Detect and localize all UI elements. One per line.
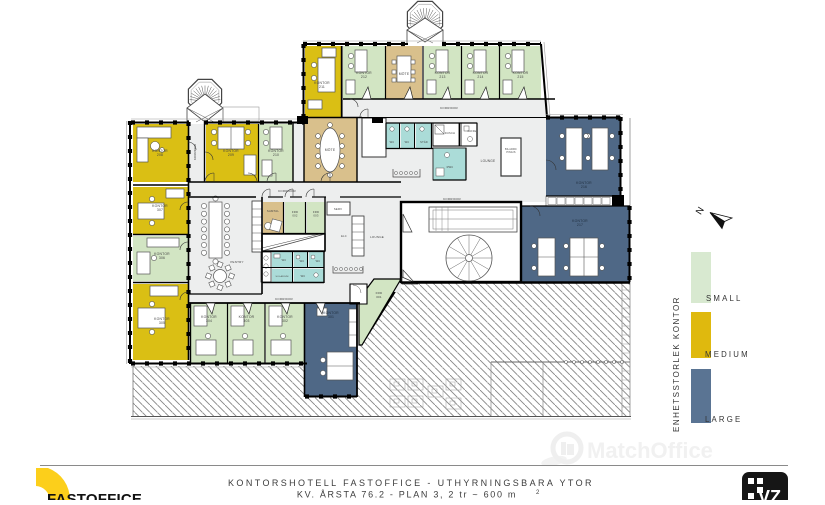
- svg-text:STÄD: STÄD: [420, 140, 428, 144]
- svg-text:MÖTE: MÖTE: [325, 148, 336, 152]
- svg-text:210: 210: [273, 153, 279, 157]
- svg-text:SOLARIUM: SOLARIUM: [275, 275, 288, 278]
- svg-text:WC: WC: [282, 258, 287, 262]
- svg-text:214: 214: [477, 75, 483, 79]
- svg-text:RWC: RWC: [447, 165, 454, 169]
- svg-text:ELC: ELC: [341, 234, 347, 238]
- svg-text:LOUNGE: LOUNGE: [481, 159, 496, 163]
- svg-text:MatchOffice: MatchOffice: [587, 438, 713, 463]
- svg-text:KORRIDOR: KORRIDOR: [193, 143, 197, 160]
- svg-text:MÖTE: MÖTE: [399, 72, 410, 76]
- svg-text:PINGIS: PINGIS: [506, 151, 516, 154]
- svg-text:DUSCH: DUSCH: [445, 131, 455, 135]
- svg-text:WC: WC: [405, 140, 410, 144]
- svg-text:002: 002: [292, 214, 298, 218]
- svg-text:217: 217: [577, 223, 583, 227]
- svg-text:KV. ÅRSTA 76.2 - PLAN 3, 2 tr: KV. ÅRSTA 76.2 - PLAN 3, 2 tr ~ 600 m: [297, 490, 517, 500]
- svg-text:SAMTAL: SAMTAL: [267, 209, 279, 213]
- svg-text:215: 215: [517, 75, 523, 79]
- svg-text:VZ: VZ: [758, 487, 781, 500]
- svg-text:ENHETSSTORLEK KONTOR: ENHETSSTORLEK KONTOR: [672, 296, 681, 432]
- svg-text:304: 304: [206, 319, 212, 323]
- svg-text:KORRIDOR: KORRIDOR: [278, 189, 296, 193]
- svg-text:KAFFE: KAFFE: [468, 130, 477, 133]
- svg-text:213: 213: [439, 75, 445, 79]
- svg-text:FASTOFFICE: FASTOFFICE: [47, 491, 142, 500]
- svg-text:301: 301: [328, 315, 334, 319]
- svg-text:WC: WC: [300, 259, 305, 263]
- svg-text:SMALL: SMALL: [706, 294, 743, 303]
- svg-text:LARGE: LARGE: [705, 415, 742, 424]
- svg-text:WC: WC: [301, 274, 306, 278]
- svg-text:PENTRY: PENTRY: [230, 260, 243, 264]
- svg-text:LOUNGE: LOUNGE: [370, 235, 384, 239]
- svg-text:KONTORSHOTELL FASTOFFICE - UTH: KONTORSHOTELL FASTOFFICE - UTHYRNINGSBAR…: [228, 478, 594, 488]
- svg-text:303: 303: [243, 319, 249, 323]
- svg-text:306: 306: [159, 256, 165, 260]
- svg-text:209: 209: [228, 153, 234, 157]
- svg-text:KORRIDOR: KORRIDOR: [440, 106, 458, 110]
- svg-text:003: 003: [313, 214, 319, 218]
- svg-text:216: 216: [581, 185, 587, 189]
- svg-text:WC: WC: [316, 259, 321, 263]
- svg-text:212: 212: [361, 75, 367, 79]
- svg-text:001: 001: [376, 295, 382, 299]
- svg-text:307: 307: [157, 208, 163, 212]
- svg-text:KORRIDOR: KORRIDOR: [443, 197, 461, 201]
- svg-text:SERV: SERV: [334, 207, 342, 211]
- svg-text:305: 305: [159, 321, 165, 325]
- svg-text:302: 302: [282, 319, 288, 323]
- svg-text:WC: WC: [390, 140, 395, 144]
- svg-text:MEDIUM: MEDIUM: [705, 350, 750, 359]
- svg-text:211: 211: [319, 85, 325, 89]
- svg-text:208: 208: [157, 153, 163, 157]
- svg-text:KORRIDOR: KORRIDOR: [275, 297, 293, 301]
